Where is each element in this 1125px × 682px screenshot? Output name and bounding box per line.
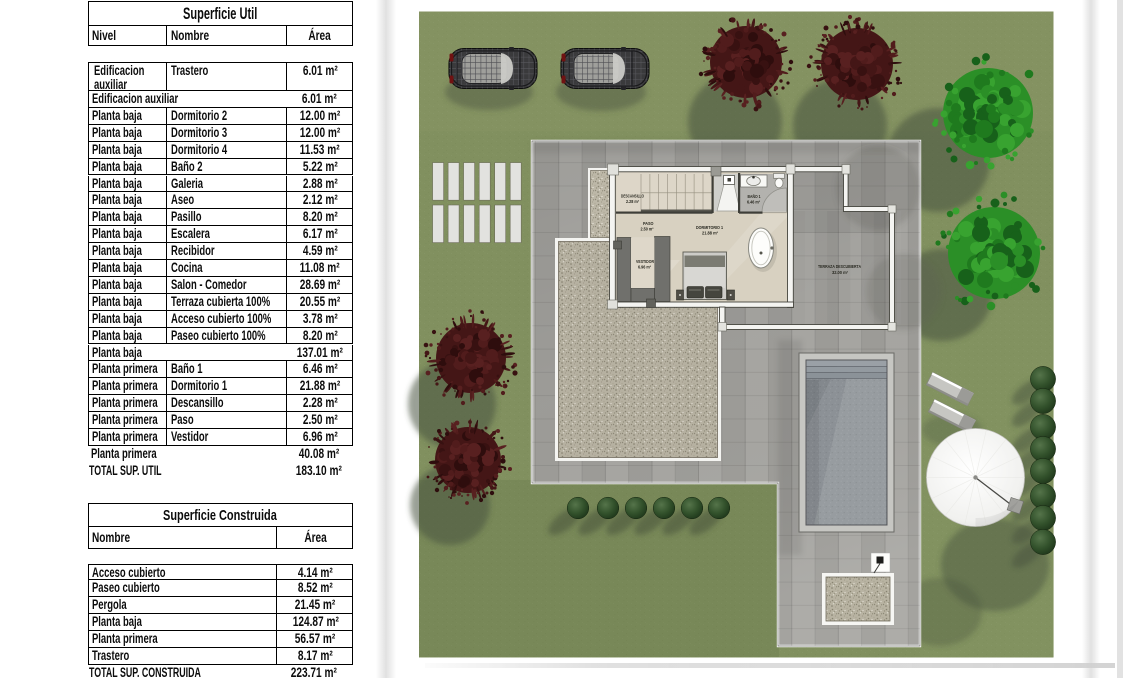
svg-text:6.46 m²: 6.46 m² xyxy=(747,200,760,205)
svg-text:PASO: PASO xyxy=(643,221,654,226)
svg-text:VESTIDOR: VESTIDOR xyxy=(636,259,655,264)
svg-text:2.28 m²: 2.28 m² xyxy=(626,199,639,204)
svg-text:DESCANSILLO: DESCANSILLO xyxy=(621,194,644,199)
svg-text:BAÑO 1: BAÑO 1 xyxy=(748,194,761,199)
svg-text:2.50 m²: 2.50 m² xyxy=(641,227,654,232)
svg-text:32.00 m²: 32.00 m² xyxy=(832,270,849,275)
svg-text:TERRAZA DESCUBIERTA: TERRAZA DESCUBIERTA xyxy=(818,264,861,269)
svg-text:6.96 m²: 6.96 m² xyxy=(638,265,651,270)
svg-text:DORMITORIO 1: DORMITORIO 1 xyxy=(696,225,724,230)
svg-text:21.88 m²: 21.88 m² xyxy=(702,231,719,236)
